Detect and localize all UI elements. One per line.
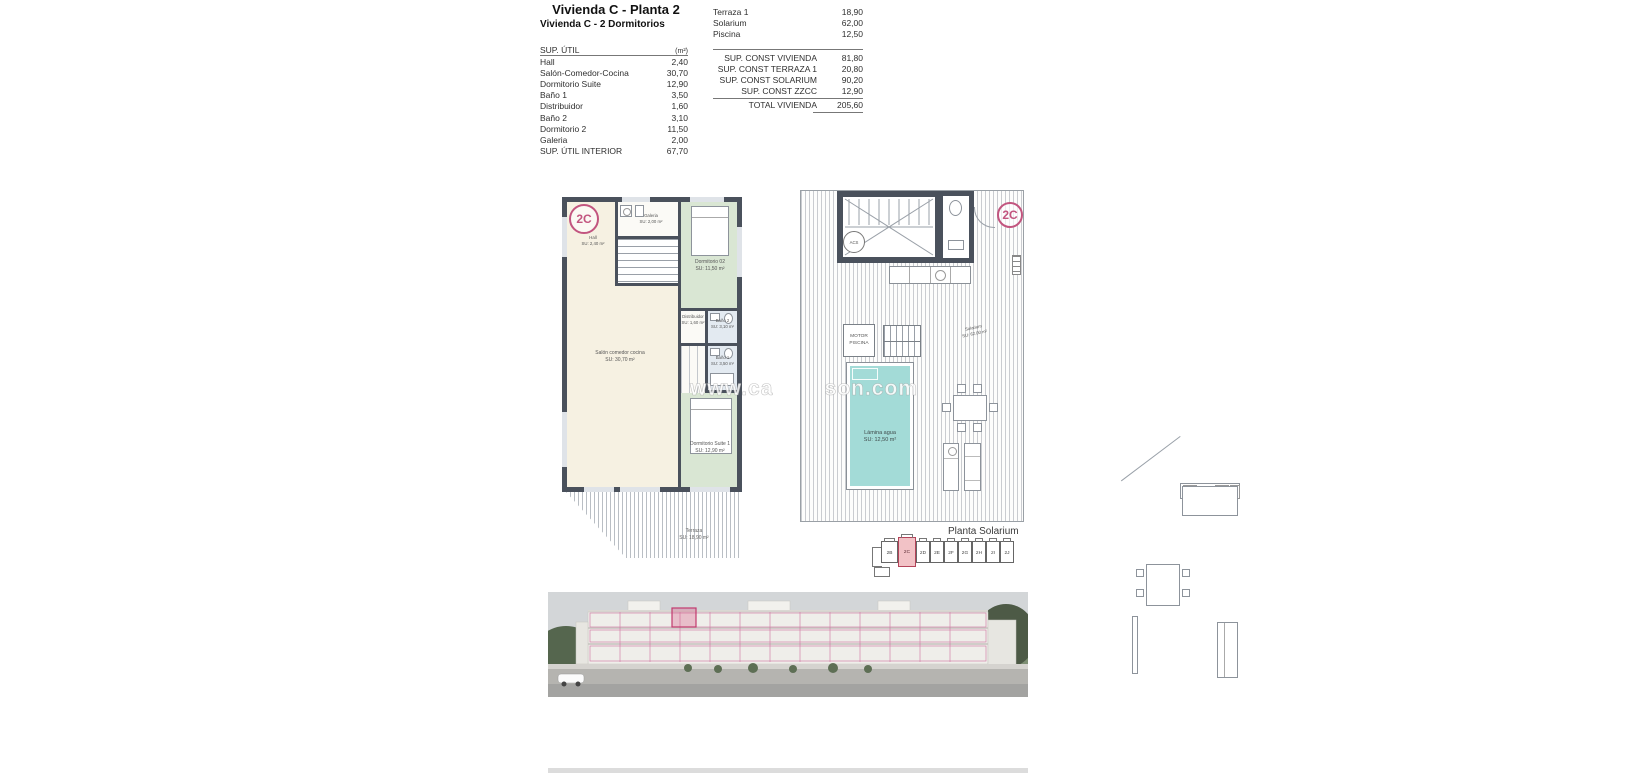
page-title: Vivienda C - Planta 2 — [540, 2, 692, 17]
counter-module — [890, 267, 910, 283]
watermark: www.ca son.com — [690, 377, 918, 401]
watermark-prefix: www.ca — [690, 377, 773, 401]
room-area: SU: 2,40 m² — [572, 241, 614, 247]
chair — [1136, 569, 1144, 577]
row-value: 62,00 — [827, 18, 863, 28]
row-value: 18,90 — [827, 7, 863, 17]
counter-module — [910, 267, 930, 283]
chair — [973, 423, 982, 432]
room-label-suite: Dormitorio Suite 1 SU: 12,90 m² — [684, 441, 736, 454]
table-row: Galeria2,00 — [540, 134, 688, 145]
sink — [948, 240, 964, 250]
page-subtitle: Vivienda C - 2 Dormitorios — [540, 19, 665, 30]
room-suite — [681, 393, 737, 487]
window — [737, 227, 742, 277]
total-label: TOTAL VIVIENDA — [713, 100, 827, 110]
lounger-headrest — [948, 447, 957, 456]
ladder — [1012, 255, 1021, 275]
bed — [691, 206, 729, 256]
sup-util-header-label: SUP. ÚTIL — [540, 45, 580, 55]
table-row: Dormitorio Suite12,90 — [540, 78, 688, 89]
room-label-galeria: Galeria SU: 2,00 m² — [626, 213, 676, 224]
key-plan-unit: 2J — [1000, 541, 1014, 563]
chair — [989, 403, 998, 412]
chair — [973, 384, 982, 393]
table-row: Solarium62,00 — [713, 17, 863, 28]
apartment-floor-plan: 2C Hall SU: 2,40 m² Galeria SU: 2,00 m² … — [562, 197, 742, 492]
room-area: SU: 1,60 m² — [678, 320, 708, 326]
key-plan-unit: 2F — [944, 541, 958, 563]
row-value: 1,60 — [652, 101, 688, 111]
key-plan-unit: 2H — [972, 541, 986, 563]
row-label: Baño 2 — [540, 113, 567, 123]
table-row: Distribuidor1,60 — [540, 101, 688, 112]
chair — [1182, 589, 1190, 597]
table-row: Piscina12,50 — [713, 28, 863, 39]
plan-sheet-page: Vivienda C - Planta 2 Vivienda C - 2 Dor… — [0, 0, 1638, 773]
unit-badge: 2C — [997, 202, 1023, 228]
table-row: Dormitorio 211,50 — [540, 123, 688, 134]
window — [584, 487, 614, 492]
sun-lounger — [964, 443, 981, 491]
row-label: Galeria — [540, 135, 567, 145]
row-label: SUP. CONST SOLARIUM — [713, 75, 827, 85]
row-value: 3,10 — [652, 113, 688, 123]
toilet — [949, 200, 962, 216]
sofa-arm — [1218, 623, 1225, 677]
row-label: SUP. CONST TERRAZA 1 — [713, 64, 827, 74]
key-plan-unit: 2I — [986, 541, 1000, 563]
bed-pillow — [692, 207, 728, 218]
motor-label-line1: MOTOR — [850, 334, 868, 341]
exterior-table: Terraza 118,90 Solarium62,00 Piscina12,5… — [713, 6, 863, 40]
sup-util-table-header: SUP. ÚTIL (m²) — [540, 42, 688, 56]
road — [548, 684, 1028, 697]
row-label: Piscina — [713, 29, 740, 39]
motor-label-line2: PISCINA — [849, 341, 868, 348]
row-value: 12,90 — [652, 79, 688, 89]
room-label-bano2: Baño 2 SU: 3,10 m² — [708, 318, 737, 329]
key-plan-unit: 2E — [930, 541, 944, 563]
row-value: 67,70 — [652, 146, 688, 156]
key-plan-unit-highlighted: 2C — [898, 537, 916, 567]
chair — [942, 403, 951, 412]
room-area: SU: 18,90 m² — [664, 535, 724, 542]
chair — [957, 423, 966, 432]
const-table: SUP. CONST VIVIENDA81,80 SUP. CONST TERR… — [713, 52, 863, 97]
acs-label: ACS — [850, 240, 859, 245]
door-arc — [974, 207, 995, 228]
key-plan: 2B 2C 2D 2E 2F 2G 2H 2I 2J — [872, 537, 1032, 577]
row-label: Dormitorio Suite — [540, 79, 601, 89]
room-area: SU: 12,90 m² — [684, 448, 736, 455]
row-value: 11,50 — [652, 124, 688, 134]
terrace: Terraza SU: 18,90 m² — [566, 492, 742, 558]
row-value: 2,40 — [652, 57, 688, 67]
pool-area: SU: 12,50 m² — [850, 437, 910, 444]
chair — [1136, 589, 1144, 597]
sofa — [1217, 622, 1238, 678]
window — [690, 197, 724, 202]
pool-name: Lámina agua — [850, 430, 910, 437]
total-row: TOTAL VIVIENDA205,60 — [713, 99, 863, 110]
outdoor-table — [953, 395, 987, 421]
table-row: Hall2,40 — [540, 56, 688, 67]
row-label: Solarium — [713, 18, 747, 28]
solarium-caption: Planta Solarium — [948, 526, 1019, 537]
row-label: Terraza 1 — [713, 7, 748, 17]
stair-midline — [884, 341, 920, 342]
room-name: Dormitorio Suite 1 — [684, 441, 736, 448]
sink-basin — [935, 270, 946, 281]
total-value: 205,60 — [827, 100, 863, 110]
table-row: Baño 23,10 — [540, 112, 688, 123]
room-area: SU: 30,70 m² — [584, 357, 656, 364]
highlighted-unit-marker — [672, 608, 696, 627]
row-label: SUP. CONST ZZCC — [713, 86, 827, 96]
solarium-floor-plan: ACS 2C MOTOR PISCINA Lá — [800, 190, 1024, 522]
page-edge — [548, 768, 1028, 773]
row-value: 3,50 — [652, 90, 688, 100]
pool-motor-box: MOTOR PISCINA — [843, 324, 875, 357]
dining-table — [1146, 564, 1180, 606]
lounger-line — [944, 458, 958, 459]
window — [620, 487, 660, 492]
room-name: Distribuidor — [678, 314, 708, 320]
solarium-label: Solarium SU: 62,00 m² — [944, 319, 1003, 342]
key-plan-unit: 2G — [958, 541, 972, 563]
building-render — [548, 592, 1028, 697]
key-plan-step — [874, 567, 890, 577]
row-label: Hall — [540, 57, 555, 67]
table-row: Terraza 118,90 — [713, 6, 863, 17]
sup-util-table: SUP. ÚTIL (m²) Hall2,40 Salón-Comedor-Co… — [540, 42, 688, 157]
row-label: Distribuidor — [540, 101, 583, 111]
row-value: 12,90 — [827, 86, 863, 96]
row-value: 81,80 — [827, 53, 863, 63]
counter-module — [951, 267, 970, 283]
row-label: Baño 1 — [540, 90, 567, 100]
table-row: Salón-Comedor-Cocina30,70 — [540, 67, 688, 78]
roof-access-stair — [883, 325, 921, 357]
kitchen-island — [1182, 486, 1238, 516]
total-underline — [813, 112, 863, 113]
chair — [1182, 569, 1190, 577]
stairs — [618, 239, 678, 283]
unit-badge: 2C — [569, 204, 599, 234]
wc-room — [941, 191, 974, 263]
row-value: 90,20 — [827, 75, 863, 85]
window — [690, 487, 730, 492]
room-area: SU: 3,50 m² — [708, 361, 737, 367]
window — [622, 197, 650, 202]
row-label: SUP. CONST VIVIENDA — [713, 53, 827, 63]
lounger-line — [965, 456, 980, 457]
watermark-suffix: son.com — [825, 377, 918, 401]
row-value: 12,50 — [827, 29, 863, 39]
room-label-terraza: Terraza SU: 18,90 m² — [664, 528, 724, 541]
row-label: SUP. ÚTIL INTERIOR — [540, 146, 622, 156]
room-label-dormitorio2: Dormitorio 02 SU: 11,50 m² — [684, 259, 736, 272]
room-label-distribuidor: Distribuidor SU: 1,60 m² — [678, 314, 708, 325]
row-value: 30,70 — [652, 68, 688, 78]
tv-cabinet — [1132, 616, 1138, 674]
chair — [957, 384, 966, 393]
room-dormitorio2 — [681, 202, 737, 308]
table-row: SUP. CONST SOLARIUM90,20 — [713, 74, 863, 85]
table-row: SUP. CONST VIVIENDA81,80 — [713, 52, 863, 63]
row-label: Dormitorio 2 — [540, 124, 586, 134]
room-area: SU: 11,50 m² — [684, 266, 736, 273]
table-row: SUP. CONST ZZCC12,90 — [713, 86, 863, 97]
sun-lounger — [943, 443, 959, 491]
room-label-salon: Salón comedor cocina SU: 30,70 m² — [584, 350, 656, 363]
row-label: Salón-Comedor-Cocina — [540, 68, 629, 78]
row-value: 2,00 — [652, 135, 688, 145]
building-render-image — [548, 592, 1028, 697]
window — [562, 412, 567, 467]
outdoor-kitchen-counter — [889, 266, 971, 284]
table-row: SUP. ÚTIL INTERIOR67,70 — [540, 146, 688, 157]
table-row: Baño 13,50 — [540, 90, 688, 101]
room-area: SU: 3,10 m² — [708, 324, 737, 330]
key-plan-unit: 2B — [881, 541, 898, 563]
lounger-line — [965, 480, 980, 481]
key-plan-unit: 2D — [916, 541, 930, 563]
sup-util-header-unit: (m²) — [675, 48, 688, 55]
room-salon — [567, 286, 678, 487]
stairs-diagonal — [1121, 436, 1181, 481]
pool-label: Lámina agua SU: 12,50 m² — [850, 430, 910, 444]
room-label-hall: Hall SU: 2,40 m² — [572, 235, 614, 246]
table-divider — [713, 49, 863, 50]
room-label-bano1: Baño 1 SU: 3,50 m² — [708, 355, 737, 366]
counter-sink — [931, 267, 951, 283]
room-area: SU: 2,00 m² — [626, 219, 676, 225]
sidewalk — [548, 664, 1028, 669]
table-row: SUP. CONST TERRAZA 120,80 — [713, 63, 863, 74]
acs-tank: ACS — [843, 231, 865, 253]
row-value: 20,80 — [827, 64, 863, 74]
window — [562, 217, 567, 257]
